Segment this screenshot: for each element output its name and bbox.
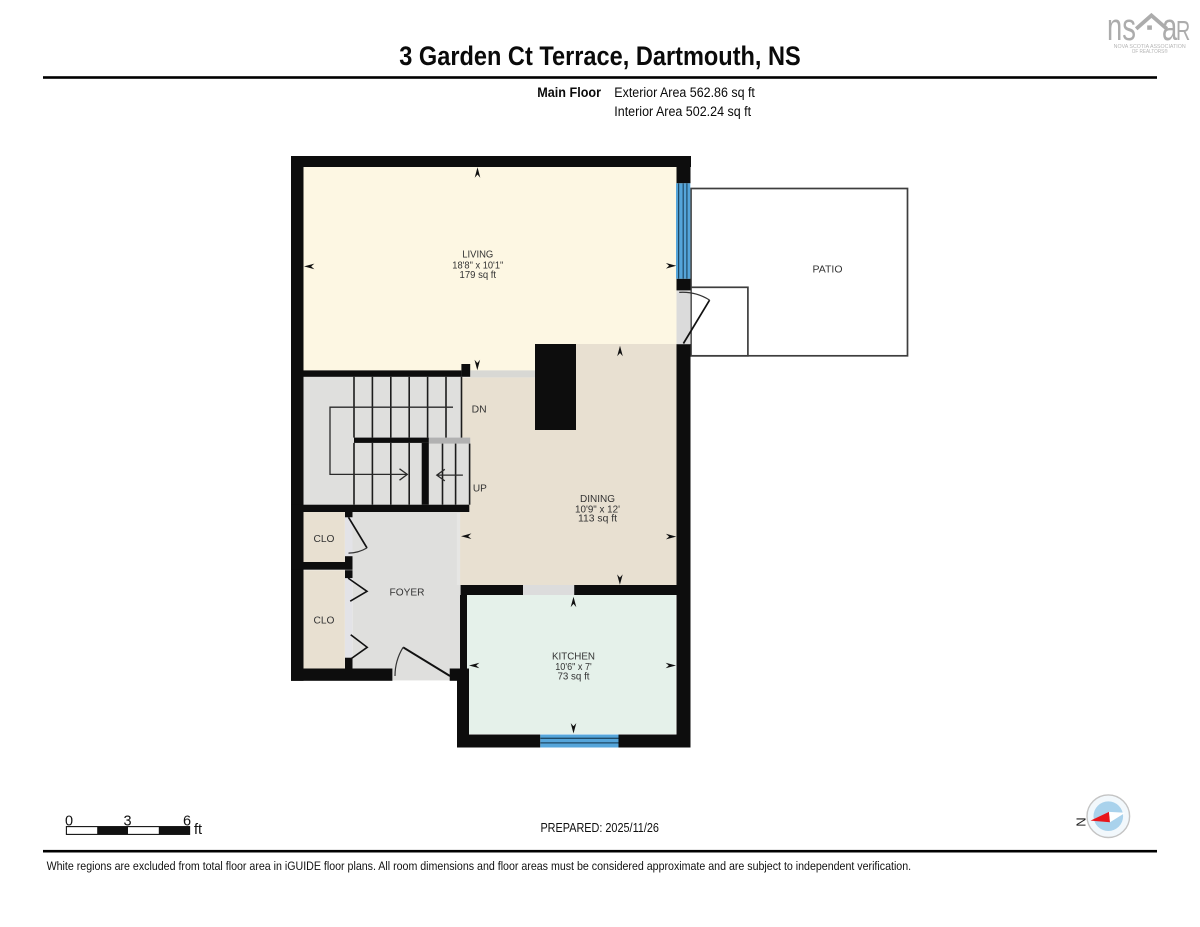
svg-text:Main Floor: Main Floor	[537, 85, 601, 100]
svg-text:3 Garden Ct Terrace, Dartmouth: 3 Garden Ct Terrace, Dartmouth, NS	[399, 41, 801, 71]
svg-text:Exterior Area 562.86 sq ft: Exterior Area 562.86 sq ft	[614, 85, 755, 100]
svg-text:PATIO: PATIO	[813, 263, 843, 275]
svg-text:UP: UP	[473, 483, 487, 494]
svg-text:73 sq ft: 73 sq ft	[558, 671, 590, 682]
svg-text:CLO: CLO	[314, 534, 335, 545]
svg-text:N: N	[1073, 817, 1088, 826]
svg-text:CLO: CLO	[314, 615, 335, 626]
svg-text:PREPARED: 2025/11/26: PREPARED: 2025/11/26	[540, 821, 659, 835]
svg-text:DINING: DINING	[580, 494, 615, 505]
svg-text:113 sq ft: 113 sq ft	[578, 514, 617, 525]
svg-text:OF REALTORS®: OF REALTORS®	[1132, 48, 1168, 55]
svg-text:FOYER: FOYER	[390, 587, 425, 598]
svg-text:DN: DN	[472, 404, 487, 415]
svg-text:White regions are excluded fro: White regions are excluded from total fl…	[47, 859, 912, 873]
svg-text:Interior Area 502.24 sq ft: Interior Area 502.24 sq ft	[614, 104, 751, 119]
svg-text:LIVING: LIVING	[462, 249, 493, 260]
svg-text:179 sq ft: 179 sq ft	[460, 270, 497, 281]
svg-text:ns: ns	[1107, 7, 1136, 49]
svg-text:ft: ft	[194, 822, 202, 838]
svg-text:R: R	[1176, 16, 1190, 47]
